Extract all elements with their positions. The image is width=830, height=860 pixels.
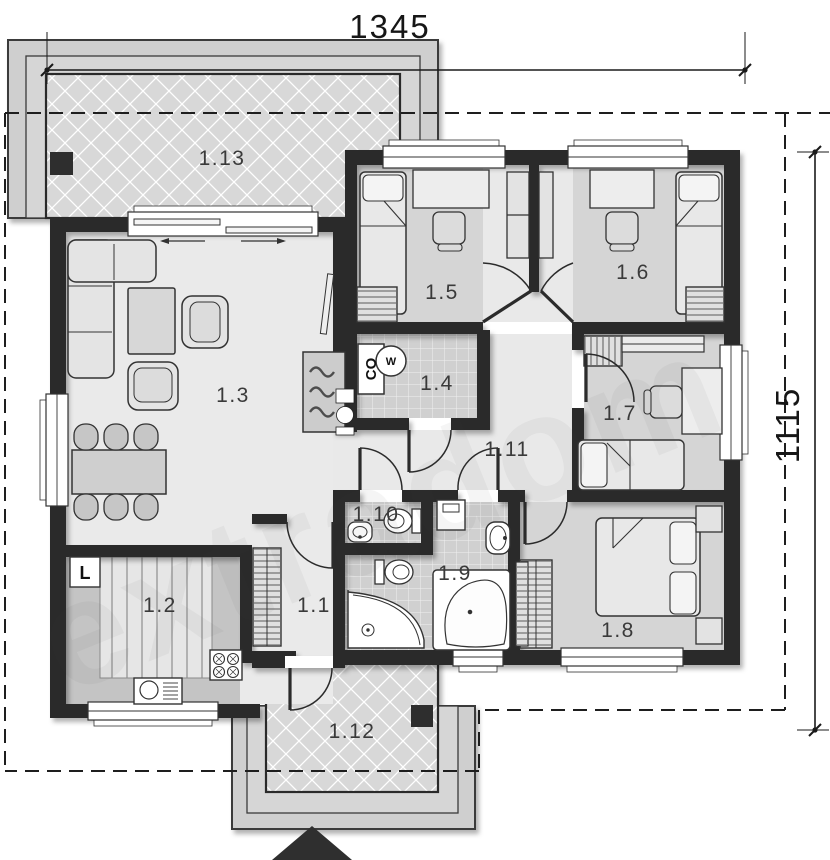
chair-1-6 bbox=[606, 212, 638, 244]
room-label-1-11: 1.11 bbox=[484, 438, 529, 461]
porch-door-opening bbox=[285, 656, 333, 668]
terrace-post bbox=[50, 152, 73, 175]
nightstand-1 bbox=[696, 506, 722, 532]
sofa-horizontal bbox=[68, 240, 156, 282]
porch-post bbox=[411, 705, 433, 727]
dimension-height-label: 1115 bbox=[769, 387, 806, 464]
cabinet-right bbox=[539, 172, 553, 258]
room-label-1-7: 1.7 bbox=[603, 402, 637, 425]
room-label-1-9: 1.9 bbox=[438, 562, 472, 585]
dimension-width-label: 1345 bbox=[349, 8, 430, 45]
chair-1-5 bbox=[433, 212, 465, 244]
fridge-label: L bbox=[80, 563, 91, 583]
pillow-1-5 bbox=[363, 175, 403, 201]
room-label-1-10: 1.10 bbox=[353, 503, 400, 526]
dining-table bbox=[72, 450, 166, 494]
room-label-1-6: 1.6 bbox=[616, 261, 650, 284]
entrance-arrow bbox=[272, 826, 352, 860]
room-label-1-2: 1.2 bbox=[143, 594, 177, 617]
room-label-1-3: 1.3 bbox=[216, 384, 250, 407]
terrace-door-sill bbox=[134, 206, 312, 212]
floor-plan: extradom 1345 1115 CO W L 1.1 1.2 1.3 1.… bbox=[0, 0, 830, 860]
pillow-1-8-a bbox=[670, 522, 696, 564]
washer bbox=[336, 389, 354, 403]
coffee-table bbox=[128, 288, 175, 354]
nightstand-2 bbox=[696, 618, 722, 644]
room-label-1-4: 1.4 bbox=[420, 372, 454, 395]
desk-1-5 bbox=[413, 170, 489, 208]
room-label-1-5: 1.5 bbox=[425, 281, 459, 304]
desk-1-6 bbox=[590, 170, 654, 208]
room-label-1-12: 1.12 bbox=[329, 720, 376, 743]
pillow-1-6 bbox=[679, 175, 719, 201]
floor-plan-svg: extradom 1345 1115 CO W L 1.1 1.2 1.3 1.… bbox=[0, 0, 830, 860]
pillow-1-8-b bbox=[670, 572, 696, 614]
water-heater-label: W bbox=[386, 356, 397, 368]
boiler-label: CO bbox=[363, 357, 380, 380]
room-label-1-13: 1.13 bbox=[199, 147, 246, 170]
room-label-1-8: 1.8 bbox=[601, 619, 635, 642]
room-label-1-1: 1.1 bbox=[297, 594, 331, 617]
